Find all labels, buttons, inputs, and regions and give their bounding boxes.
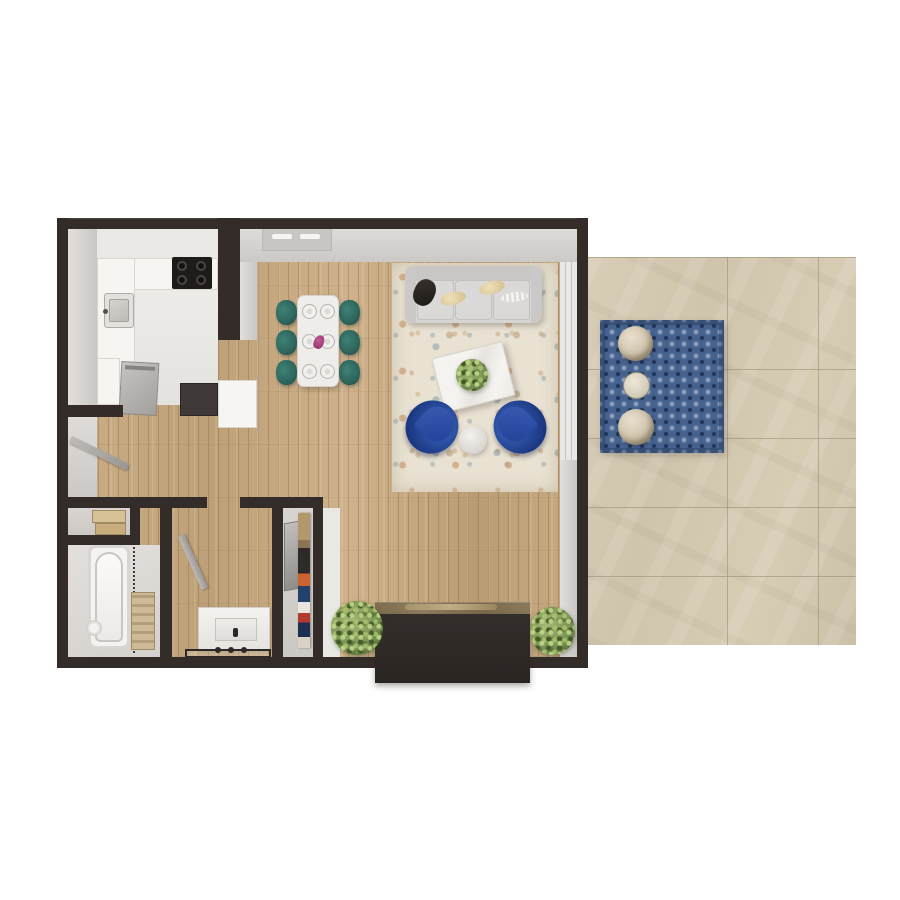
dining-chair [339,300,360,325]
dining-chair [339,330,360,355]
table-plant [456,359,488,391]
kitchen-south-wall [57,405,123,417]
wall-stub-counter [218,380,257,428]
dining-chair [276,360,297,385]
dining-chair [276,300,297,325]
shrub-plant [530,607,575,655]
hall-left-face [68,417,97,497]
linen-closet-wall [57,535,140,545]
ladder-shelf [131,592,155,650]
divider-wall-face [240,262,257,340]
ceiling-light-slot [300,234,320,239]
linen-towel [92,510,126,523]
mantel-log [405,604,497,610]
rooms-north-wall [240,497,323,508]
kitchen-dining-divider-wall [218,218,240,340]
floor-plan-canvas [0,0,900,900]
outer-wall-top [57,218,588,229]
ceiling-light-slot [272,234,292,239]
towel-roll [86,620,102,636]
linen-towel [95,523,126,535]
patio-table [623,372,650,399]
hanging-clothes [298,513,310,648]
kitchen-lower-cabinet [97,358,120,405]
fireplace [375,614,530,683]
dining-table [297,295,339,387]
round-side-table [459,426,487,454]
vanity-sink [198,607,270,650]
outer-wall-right [577,218,588,668]
sliding-glass-door [560,262,577,460]
patio-chair [618,409,654,445]
kitchen-left-wall-face [68,229,97,405]
stove-cooktop [172,257,212,289]
kitchen-sink [104,293,134,328]
ceiling-light-panel [262,228,332,251]
linen-closet-wall [130,497,140,545]
sofa [405,266,542,323]
refrigerator [180,383,218,416]
dining-chair [276,330,297,355]
bath-vanity-divider-wall [160,508,172,660]
vanity-closet-divider-wall [272,508,283,660]
outer-wall-left [57,218,68,668]
shrub-plant [331,601,383,655]
glass-door-frame-line [565,262,566,460]
glass-door-frame-line [571,262,572,460]
dining-chair [339,360,360,385]
dishwasher [119,361,160,416]
patio-chair [618,326,653,361]
closet-right-wall [313,497,323,660]
